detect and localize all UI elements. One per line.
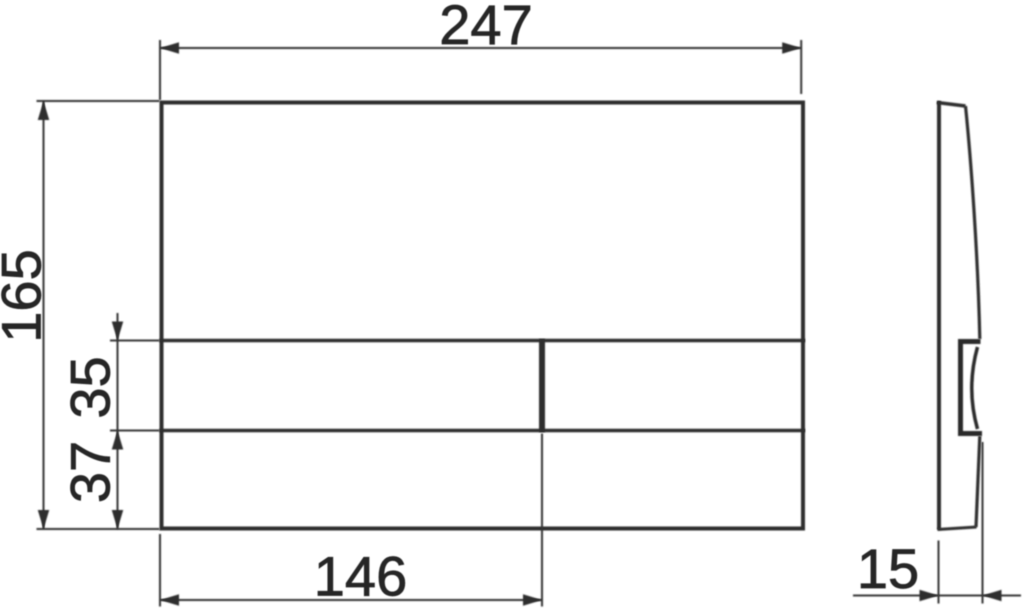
svg-text:15: 15 xyxy=(857,537,919,600)
svg-text:35: 35 xyxy=(59,356,122,418)
svg-text:37: 37 xyxy=(59,441,122,503)
svg-text:146: 146 xyxy=(314,545,407,608)
svg-text:165: 165 xyxy=(0,249,53,342)
svg-text:247: 247 xyxy=(439,0,532,56)
